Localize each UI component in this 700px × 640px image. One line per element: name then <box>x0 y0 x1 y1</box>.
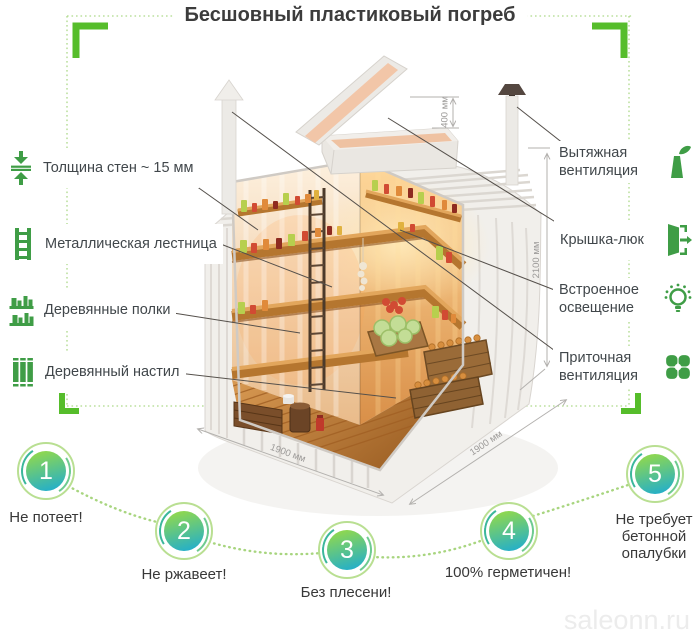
benefit-label-2: Не ржавеет! <box>128 566 240 583</box>
wall-thickness-icon <box>8 151 34 185</box>
benefit-badge-5: 5 <box>626 445 684 503</box>
exhaust-vent-pipe <box>498 84 526 185</box>
label-text: Толщина стен ~ 15 мм <box>43 159 193 177</box>
benefit-label-1: Не потеет! <box>0 509 92 526</box>
label-text: Деревянный настил <box>45 363 180 381</box>
hatch-lid-icon <box>665 223 692 257</box>
supply-vent-icon <box>664 353 692 381</box>
label-wooden-deck: Деревянный настил <box>10 352 186 392</box>
benefit-label-3: Без плесени! <box>287 584 405 601</box>
badge-number: 4 <box>489 511 529 551</box>
wooden-shelves-icon <box>8 293 35 327</box>
badge-number: 5 <box>635 454 675 494</box>
label-text: Приточная вентиляция <box>559 349 655 385</box>
ladder-icon <box>10 227 36 261</box>
dim-inner-height: 2100 мм <box>531 242 542 279</box>
badge-number: 1 <box>26 451 66 491</box>
label-wall-thickness: Толщина стен ~ 15 мм <box>8 148 199 188</box>
hatch-neck <box>322 128 458 174</box>
label-hatch-lid: Крышка-люк <box>554 220 692 260</box>
label-text: Встроенное освещение <box>559 281 655 317</box>
exhaust-vent-icon <box>664 145 692 179</box>
label-built-in-light: Встроенное освещение <box>553 278 692 320</box>
benefit-badge-1: 1 <box>17 442 75 500</box>
benefit-label-5: Не требует бетонной опалубки <box>599 511 700 562</box>
badge-number: 2 <box>164 511 204 551</box>
label-metal-ladder: Металлическая лестница <box>10 224 223 264</box>
watermark: saleonn.ru <box>564 605 690 636</box>
label-text: Металлическая лестница <box>45 235 217 253</box>
label-wooden-shelves: Деревянные полки <box>8 290 176 330</box>
page-title: Бесшовный пластиковый погреб <box>173 2 528 29</box>
cellar-infographic: 400 мм 2100 мм 1900 мм 1900 мм Бесшовный… <box>0 0 700 640</box>
benefit-badge-2: 2 <box>155 502 213 560</box>
label-exhaust-vent: Вытяжная вентиляция <box>553 141 692 183</box>
label-text: Вытяжная вентиляция <box>559 144 655 180</box>
label-text: Деревянные полки <box>44 301 170 319</box>
label-text: Крышка-люк <box>560 231 656 249</box>
label-supply-vent: Приточная вентиляция <box>553 346 692 388</box>
wooden-deck-icon <box>10 355 36 389</box>
benefit-badge-3: 3 <box>318 521 376 579</box>
badge-number: 3 <box>327 530 367 570</box>
built-in-light-icon <box>664 282 692 316</box>
benefit-label-4: 100% герметичен! <box>424 564 592 581</box>
dim-neck-height: 400 мм <box>440 96 451 128</box>
benefit-badge-4: 4 <box>480 502 538 560</box>
